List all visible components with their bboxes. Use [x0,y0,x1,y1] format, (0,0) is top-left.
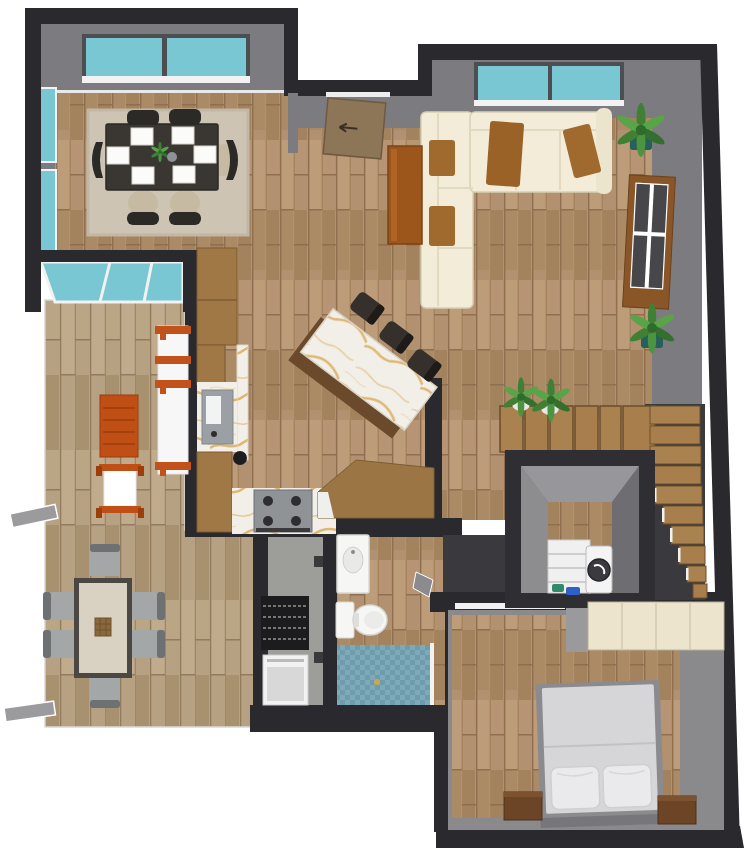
toilet[interactable] [336,602,387,638]
toilet-seat [364,611,384,629]
accent-cushion[interactable] [429,140,455,176]
stairwell-wall-left [505,450,521,608]
wall-hook[interactable] [314,556,323,567]
placemat [131,128,153,145]
window-pane [86,38,162,76]
bedroom [448,602,724,830]
shower-tile-floor [337,645,430,712]
placemat [172,127,194,144]
baseboard-line [55,90,298,93]
dining-south-wall-top [25,250,197,262]
cooktop-controls [256,528,310,532]
stair-tread [655,486,702,504]
burner [291,496,301,506]
gray-chair[interactable] [132,630,165,658]
sofa-arm [596,108,612,194]
placemat [107,147,129,164]
shower-drain [374,679,380,685]
window-sill [474,100,624,106]
shelf-board [155,462,191,470]
stair-tread [650,406,700,424]
dining-chair[interactable] [169,109,201,125]
base-cabinet[interactable] [197,345,225,385]
base-cabinet[interactable] [197,452,232,532]
stair-tread [679,546,705,564]
accent-cushion[interactable] [429,206,455,246]
shelf-bracket [160,388,166,394]
orange-table[interactable] [100,395,138,457]
burner [263,496,273,506]
chair-leg [138,466,144,476]
centerpiece-bowl [167,152,177,162]
table-top[interactable] [100,395,138,457]
window-sill [82,76,250,83]
stair-tread [687,566,706,582]
shelf-bracket [160,470,166,476]
window-pane [552,66,620,100]
west-wall [25,8,41,263]
washer-drum [588,559,610,581]
glass-door-panes [41,262,183,302]
stairwell-wall-right [639,450,655,608]
kettle[interactable] [233,451,247,465]
sink-basin [206,396,221,424]
stair-tread [650,426,700,444]
shelf-bracket [160,334,166,340]
cabinet-front [267,667,304,701]
wall-hook[interactable] [314,652,323,663]
washing-machine[interactable] [586,546,612,593]
detergent-bottle[interactable] [566,587,580,595]
window-pane [167,38,246,76]
stair-tread [650,446,701,464]
stair-tread [663,506,703,524]
north-wall-living [418,44,702,60]
stair-tread [650,466,701,484]
dining-chair[interactable] [127,212,159,225]
stair-tread [693,584,707,598]
shelf-board [155,326,191,334]
shelf-board [155,356,191,364]
sink-faucet [351,550,355,554]
toilet-tank [336,602,354,638]
dining-chair[interactable] [169,212,201,225]
window-pane [40,170,56,252]
slatted-shelf[interactable] [261,596,309,650]
shelf-backing [158,326,188,474]
chair-leg [138,508,144,518]
living-north-window[interactable] [474,62,624,106]
south-wall-bath [250,705,460,732]
chair-leg [96,466,102,476]
shelf-unit[interactable] [155,326,191,476]
staircase [500,377,707,608]
nightstand-top [658,796,696,801]
double-bed[interactable] [536,680,665,828]
placemat [194,146,216,163]
chair-rail [99,506,141,513]
chair-seat [104,470,136,506]
counter-marble-edge [237,345,248,460]
gray-chair[interactable] [132,592,165,620]
media-console[interactable] [623,175,676,309]
window-pane [40,88,56,162]
dining-south-glass-wall[interactable] [41,262,183,302]
hallway-bath-wall [323,537,337,718]
chair-leg [96,508,102,518]
detergent-bottle[interactable] [552,584,564,592]
sink-faucet [211,431,217,437]
dining-south-post-left [25,250,41,312]
shower-glass-panel [430,643,434,712]
burner [291,516,301,526]
placemat [173,166,195,183]
notch-east-return [418,44,432,96]
toilet-hinge [354,613,359,627]
stair-tread [575,406,598,452]
doorway-return [566,608,588,652]
woven-basket[interactable] [95,618,111,636]
shelf-board [155,380,191,388]
dining-north-window[interactable] [82,34,250,83]
laundry-below-stairs [521,466,639,595]
floorplan-render [0,0,753,848]
dining-west-windows[interactable] [40,88,56,252]
north-wall-dining [25,8,298,24]
entry-threshold [326,92,390,97]
dining-room [88,109,248,235]
wall-stub-face [288,93,298,153]
gray-chair[interactable] [43,630,76,658]
window-pane [478,66,548,100]
placemat [132,167,154,184]
cooktop[interactable] [254,490,312,532]
pantry-cabinet[interactable] [197,248,237,345]
cabinet-handle [267,659,304,662]
gray-chair[interactable] [90,678,120,708]
stairwell-wall-top [505,450,655,466]
throw-blanket[interactable] [486,121,524,187]
gray-chair[interactable] [43,592,76,620]
burner [263,516,273,526]
entry-door[interactable] [323,98,386,159]
stair-tread [600,406,621,452]
stair-tread [671,526,704,544]
nightstand-top [504,792,542,797]
gray-chair[interactable] [90,544,120,576]
chair-rail [99,464,141,471]
coffee-table-highlight [391,149,397,241]
